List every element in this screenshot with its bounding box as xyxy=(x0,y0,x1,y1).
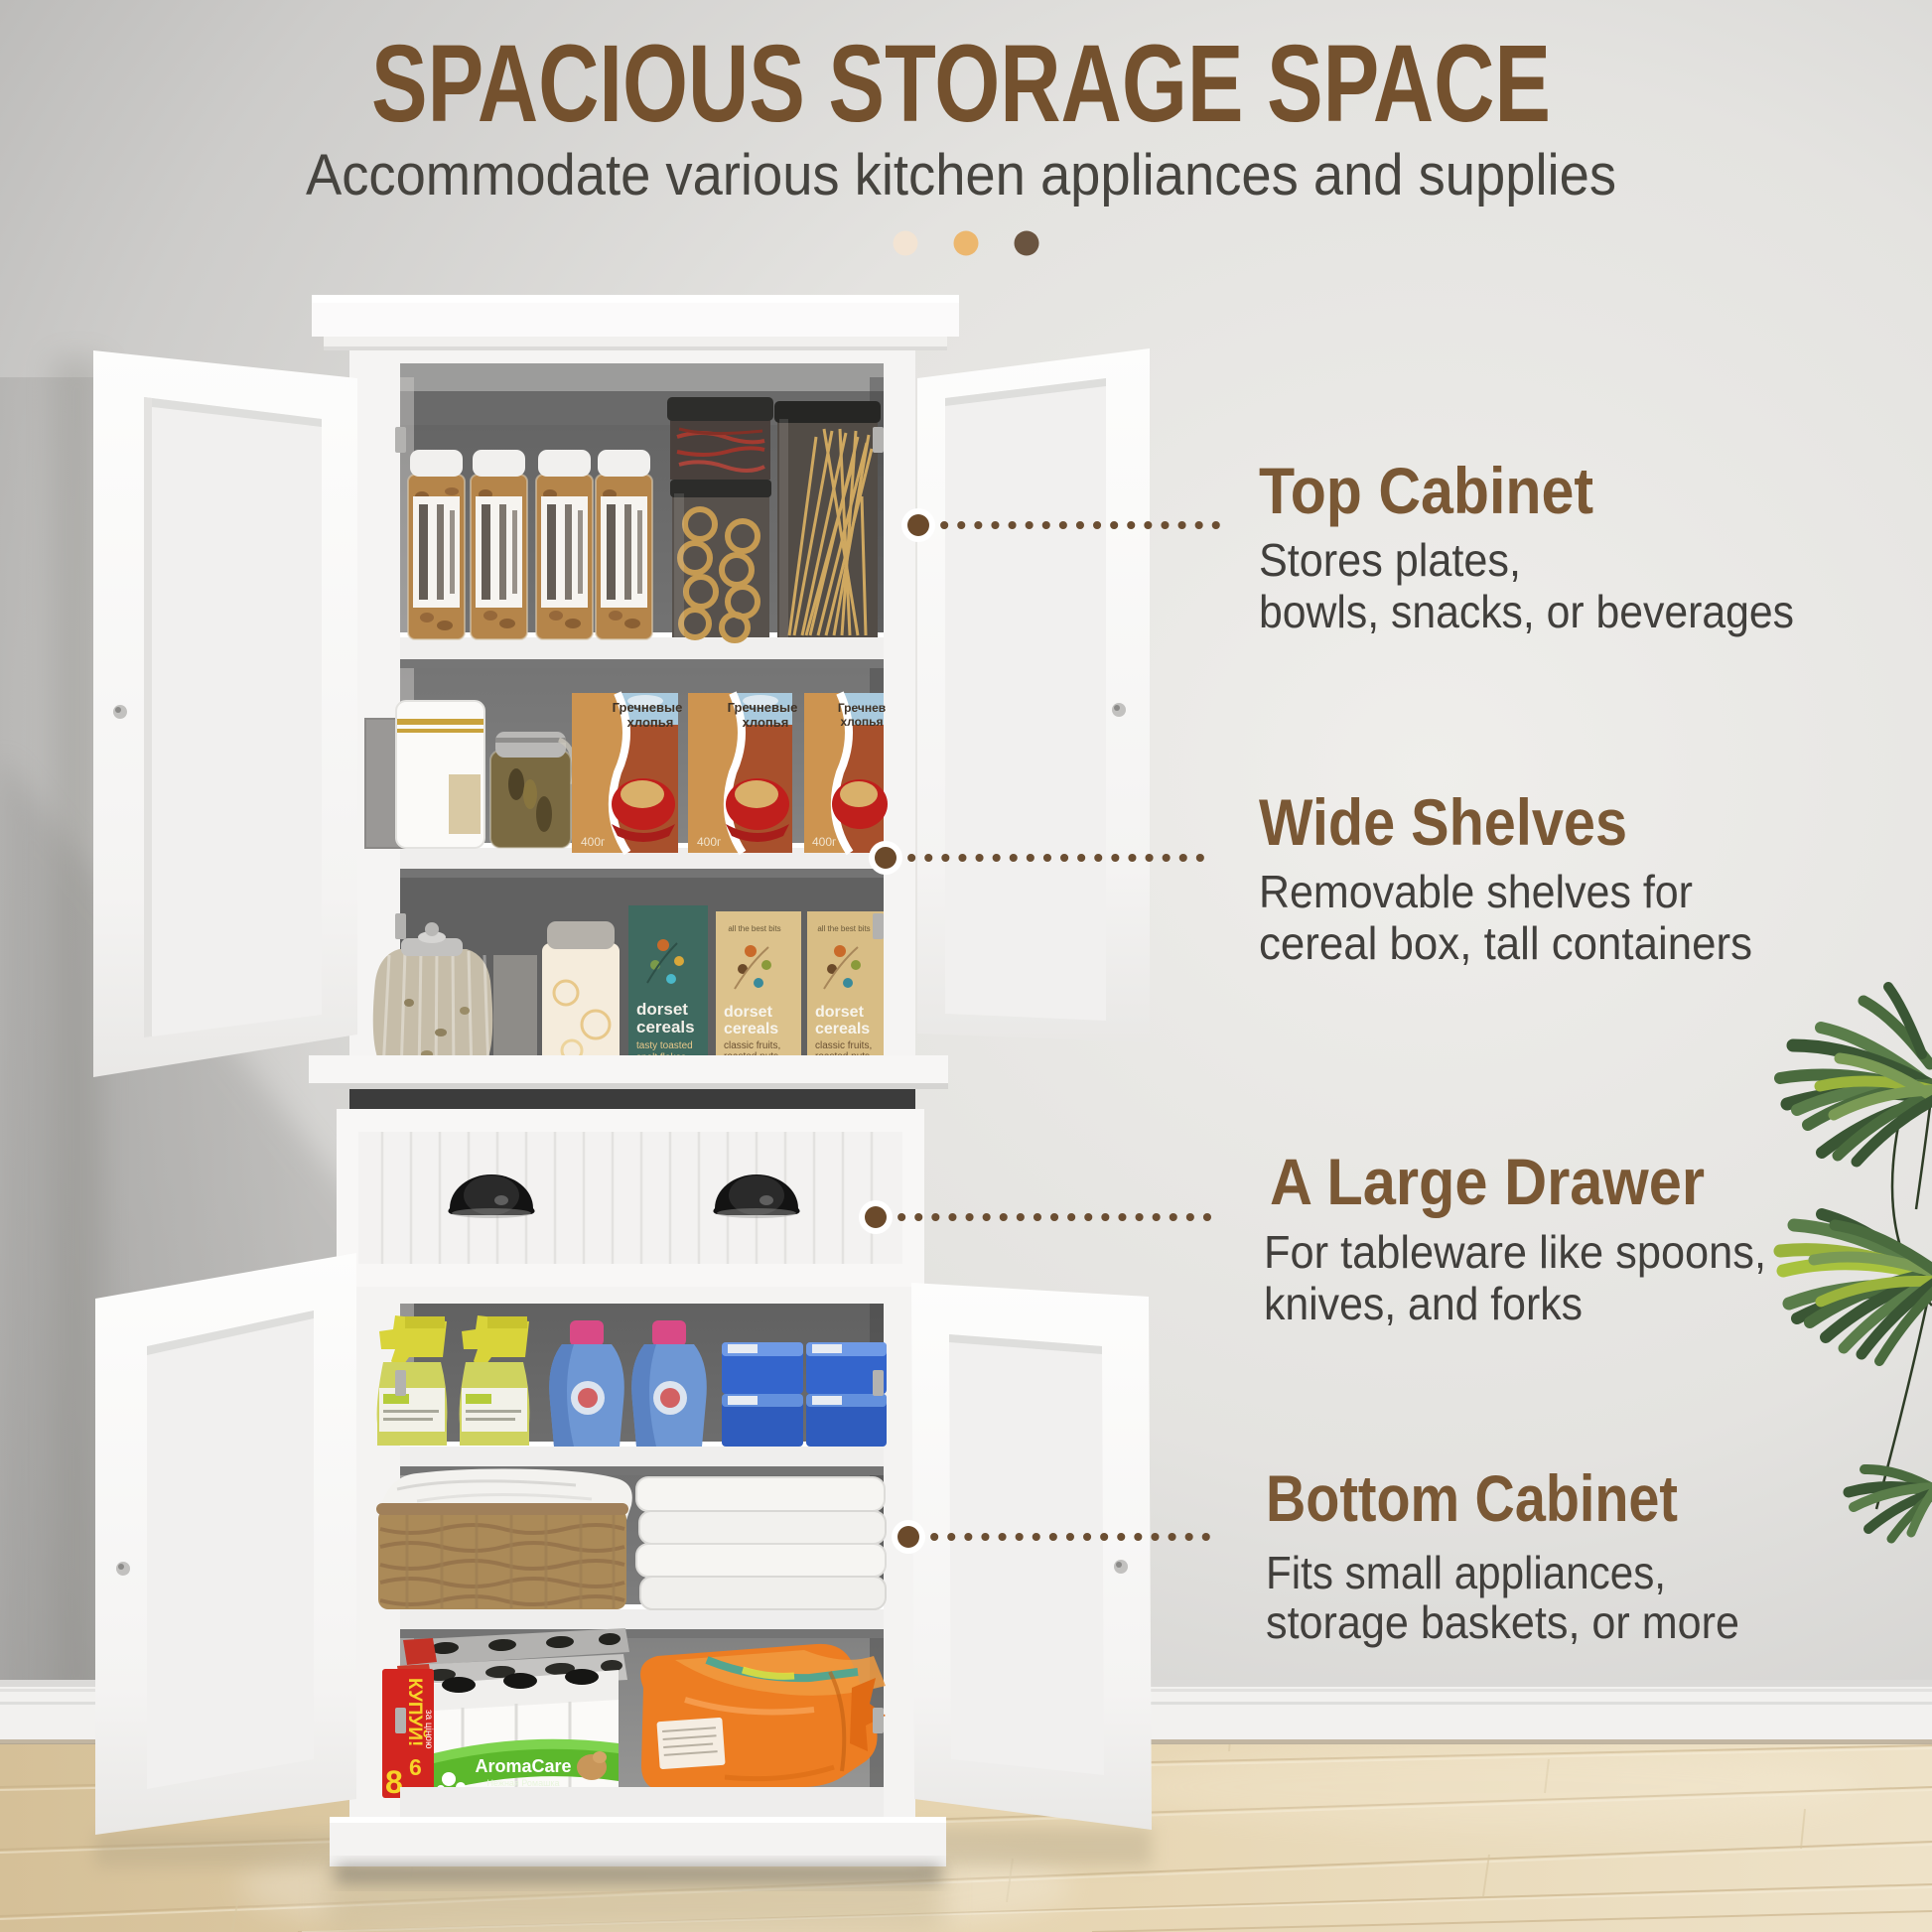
svg-text:Stores plates,: Stores plates, xyxy=(1259,534,1521,586)
svg-text:Гречневые: Гречневые xyxy=(728,700,798,715)
svg-text:Гречневые: Гречневые xyxy=(613,700,683,715)
svg-text:Гречнев: Гречнев xyxy=(838,701,886,715)
svg-text:all the best bits: all the best bits xyxy=(817,924,870,933)
svg-text:Removable shelves for: Removable shelves for xyxy=(1259,866,1693,917)
svg-text:storage baskets, or more: storage baskets, or more xyxy=(1266,1596,1739,1648)
svg-text:classic fruits,: classic fruits, xyxy=(815,1040,872,1051)
svg-text:bowls, snacks, or beverages: bowls, snacks, or beverages xyxy=(1259,586,1794,637)
svg-text:dorset: dorset xyxy=(636,1000,688,1019)
svg-text:For tableware like spoons,: For tableware like spoons, xyxy=(1264,1226,1766,1278)
svg-text:Fits small appliances,: Fits small appliances, xyxy=(1266,1547,1666,1598)
svg-text:400г: 400г xyxy=(812,835,837,849)
svg-text:cereals: cereals xyxy=(815,1021,870,1037)
svg-text:Accommodate various kitchen ap: Accommodate various kitchen appliances a… xyxy=(306,143,1616,207)
svg-text:SPACIOUS STORAGE SPACE: SPACIOUS STORAGE SPACE xyxy=(371,23,1551,145)
svg-text:all the best bits: all the best bits xyxy=(728,924,780,933)
svg-text:хлопья: хлопья xyxy=(840,715,883,729)
svg-text:A Large Drawer: A Large Drawer xyxy=(1270,1145,1705,1218)
svg-text:knives, and forks: knives, and forks xyxy=(1264,1278,1583,1329)
svg-text:КУПУЙ!: КУПУЙ! xyxy=(404,1678,426,1746)
svg-text:dorset: dorset xyxy=(724,1004,773,1021)
svg-text:cereals: cereals xyxy=(636,1018,695,1036)
svg-text:6: 6 xyxy=(409,1754,422,1780)
svg-text:за ціною: за ціною xyxy=(423,1710,434,1749)
svg-text:classic fruits,: classic fruits, xyxy=(724,1040,780,1051)
svg-text:cereal box, tall containers: cereal box, tall containers xyxy=(1259,917,1752,969)
svg-text:cereals: cereals xyxy=(724,1021,778,1037)
svg-text:Wide Shelves: Wide Shelves xyxy=(1259,785,1627,859)
svg-text:tasty toasted: tasty toasted xyxy=(636,1040,693,1051)
svg-text:хлопья: хлопья xyxy=(627,715,674,730)
svg-text:Top Cabinet: Top Cabinet xyxy=(1259,454,1593,527)
svg-text:400г: 400г xyxy=(697,835,722,849)
svg-text:Bottom Cabinet: Bottom Cabinet xyxy=(1266,1461,1678,1535)
svg-text:dorset: dorset xyxy=(815,1004,865,1021)
svg-text:хлопья: хлопья xyxy=(743,715,789,730)
svg-text:Нежная Ромашка: Нежная Ромашка xyxy=(487,1778,560,1788)
svg-text:400г: 400г xyxy=(581,835,606,849)
svg-text:AromaCare: AromaCare xyxy=(475,1756,571,1776)
